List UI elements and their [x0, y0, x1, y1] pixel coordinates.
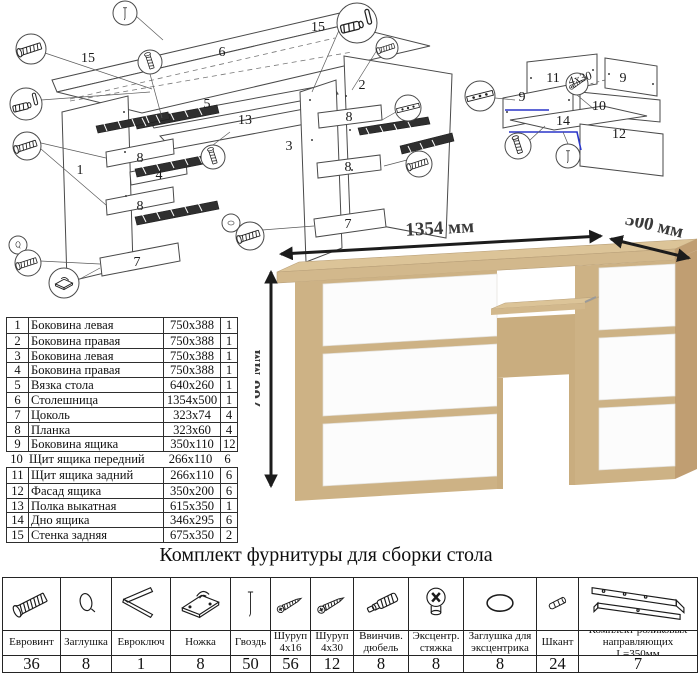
hardware-icon-cell [3, 578, 60, 630]
part-qty: 2 [220, 527, 237, 542]
part-name: Боковина правая [28, 333, 163, 348]
hardware-icon-cell [408, 578, 463, 630]
nail-icon [231, 582, 270, 626]
hardware-name: Шкант [536, 630, 578, 655]
part-name: Щит ящика передний [27, 452, 162, 467]
part-number-label: 8 [345, 160, 352, 175]
callout-circle [13, 132, 41, 160]
part-number-label: 13 [238, 113, 252, 128]
parts-row: 7Цоколь323x744 [7, 407, 237, 422]
part-name: Дно ящика [28, 512, 163, 527]
hardware-qty: 50 [230, 655, 270, 672]
parts-row: 14Дно ящика346x2956 [7, 512, 237, 527]
callout-circle [15, 250, 41, 276]
hardware-kit-table: Евровинт36 Заглушка8 Евроключ1 Ножка8 Гв… [2, 577, 698, 673]
parts-row: 9Боковина ящика350x11012 [7, 436, 237, 451]
hardware-icon-cell [170, 578, 230, 630]
parts-row: 2Боковина правая750x3881 [7, 333, 237, 348]
part-number-label: 15 [311, 20, 325, 35]
hardware-name: Ножка [170, 630, 230, 655]
part-name: Боковина правая [28, 362, 163, 377]
dimension-width-label: 1354 мм [405, 218, 475, 241]
hardware-qty: 7 [578, 655, 697, 672]
hardware-name: Гвоздь [230, 630, 270, 655]
hardware-name: Ввинчив. дюбель [353, 630, 408, 655]
part-number-label: 15 [81, 51, 95, 66]
part-size: 266x110 [162, 452, 219, 467]
desk-right-side [675, 250, 697, 479]
hardware-qty: 8 [353, 655, 408, 672]
part-number-label: 11 [546, 71, 559, 86]
callout-circle [406, 151, 432, 177]
part-qty: 1 [220, 377, 237, 392]
part-qty: 1 [220, 318, 237, 333]
callout-circle [49, 268, 79, 298]
callout-circle [10, 88, 42, 120]
part-size: 346x295 [163, 512, 220, 527]
part-number-label: 5 [204, 97, 211, 112]
hardware-qty: 1 [111, 655, 170, 672]
part-num: 4 [7, 362, 28, 377]
part-num: 10 [6, 452, 27, 467]
part-size: 750x388 [163, 333, 220, 348]
part-size: 266x110 [163, 468, 220, 483]
part-number-label: 9 [519, 90, 526, 105]
desk-inner-edge [497, 378, 503, 489]
foot-icon [171, 582, 230, 626]
part-size: 750x388 [163, 348, 220, 363]
drawer-side-panel [605, 58, 657, 96]
part-num: 12 [7, 483, 28, 498]
part-qty: 6 [220, 468, 237, 483]
callout-circle [138, 50, 162, 74]
hardware-kit-title: Комплект фурнитуры для сборки стола [0, 544, 652, 567]
part-size: 350x200 [163, 483, 220, 498]
part-qty: 6 [220, 512, 237, 527]
part-num: 11 [7, 468, 28, 483]
cap-icon [61, 582, 111, 626]
part-size: 750x388 [163, 318, 220, 333]
callout-circle [201, 145, 225, 169]
parts-row: 8Планка323x604 [7, 422, 237, 437]
screw-icon [311, 582, 353, 626]
hardware-qty: 8 [170, 655, 230, 672]
part-qty: 6 [220, 483, 237, 498]
part-number-label: 2 [359, 78, 366, 93]
callout-circle [505, 133, 531, 159]
desk-drawer-front [599, 334, 675, 400]
callout-circle [395, 95, 421, 121]
hardware-qty: 36 [3, 655, 60, 672]
dowel-threaded-icon [354, 582, 408, 626]
parts-row: 6Столешница1354x5001 [7, 392, 237, 407]
part-num: 1 [7, 318, 28, 333]
part-qty: 4 [220, 407, 237, 422]
part-qty: 1 [220, 333, 237, 348]
part-size: 615x350 [163, 498, 220, 513]
part-name: Щит ящика задний [28, 468, 163, 483]
hardware-icon-cell [578, 578, 697, 630]
parts-row: 12Фасад ящика350x2006 [7, 483, 237, 498]
part-number-label: 9 [620, 71, 627, 86]
parts-row: 3Боковина левая750x3881 [7, 348, 237, 363]
exploded-diagram-drawer: 1199101412 4х30 [455, 40, 700, 235]
euro-screw-icon [3, 582, 60, 626]
part-name: Цоколь [28, 407, 163, 422]
part-number-label: 8 [137, 199, 144, 214]
part-name: Боковина левая [28, 318, 163, 333]
part-num: 8 [7, 422, 28, 437]
oval-cap-icon [464, 582, 536, 626]
parts-list-table: 1Боковина левая750x38812Боковина правая7… [6, 317, 238, 543]
part-number-label: 10 [592, 99, 606, 114]
part-num: 9 [7, 436, 28, 451]
parts-row: 13Полка выкатная615x3501 [7, 498, 237, 513]
part-size: 323x60 [163, 422, 220, 437]
parts-row: 5Вязка стола640x2601 [7, 377, 237, 392]
dimension-depth-label: 500 мм [623, 218, 685, 243]
part-number-label: 7 [134, 255, 141, 270]
hardware-qty: 24 [536, 655, 578, 672]
part-name: Стенка задняя [28, 527, 163, 542]
desk-modesty-panel [497, 314, 575, 378]
part-number-label: 8 [346, 110, 353, 125]
callout-circle [376, 37, 398, 59]
part-qty: 1 [220, 362, 237, 377]
hardware-name: Заглушка для эксцентрика [463, 630, 536, 655]
part-num: 15 [7, 527, 28, 542]
hardware-qty: 8 [408, 655, 463, 672]
hardware-name: Евроключ [111, 630, 170, 655]
part-number-label: 14 [556, 114, 570, 129]
part-size: 1354x500 [163, 392, 220, 407]
parts-row: 1Боковина левая750x3881 [7, 318, 237, 333]
part-number-label: 12 [612, 127, 626, 142]
desk-drawer-front [599, 404, 675, 470]
part-num: 5 [7, 377, 28, 392]
part-size: 350x110 [163, 436, 220, 451]
part-name: Планка [28, 422, 163, 437]
dimension-height-label: 766 мм [255, 349, 265, 408]
part-name: Фасад ящика [28, 483, 163, 498]
hardware-name: Заглушка [60, 630, 111, 655]
part-name: Столешница [28, 392, 163, 407]
part-number-label: 1 [77, 163, 84, 178]
part-number-label: 3 [286, 139, 293, 154]
hardware-qty: 12 [310, 655, 353, 672]
hardware-icon-cell [270, 578, 310, 630]
part-qty: 4 [220, 422, 237, 437]
part-number-label: 8 [137, 151, 144, 166]
part-name: Боковина левая [28, 348, 163, 363]
parts-row: 15Стенка задняя675x3502 [7, 527, 237, 542]
hardware-qty: 56 [270, 655, 310, 672]
part-num: 6 [7, 392, 28, 407]
part-size: 323x74 [163, 407, 220, 422]
part-size: 750x388 [163, 362, 220, 377]
part-name: Боковина ящика [28, 436, 163, 451]
hardware-name: Евровинт [3, 630, 60, 655]
hardware-icon-cell [111, 578, 170, 630]
hardware-icon-cell [60, 578, 111, 630]
hardware-qty: 8 [463, 655, 536, 672]
part-qty: 1 [220, 348, 237, 363]
part-qty: 1 [220, 498, 237, 513]
hardware-icon-cell [536, 578, 578, 630]
hardware-icon-cell [463, 578, 536, 630]
hardware-qty: 8 [60, 655, 111, 672]
part-size: 675x350 [163, 527, 220, 542]
hardware-icon-cell [310, 578, 353, 630]
part-num: 13 [7, 498, 28, 513]
wood-dowel-icon [537, 582, 578, 626]
hex-key-icon [112, 582, 170, 626]
desk-3d-render: 1354 мм 500 мм 766 мм [255, 218, 700, 552]
part-number-label: 4 [156, 168, 163, 183]
part-size: 640x260 [163, 377, 220, 392]
parts-row: 4Боковина правая750x3881 [7, 362, 237, 377]
part-name: Вязка стола [28, 377, 163, 392]
hardware-name: Эксцентр. стяжка [408, 630, 463, 655]
callout-circle [556, 144, 580, 168]
callout-circle [16, 34, 46, 64]
drawer-slide-icon [579, 582, 697, 626]
callout-circle [465, 81, 495, 111]
part-num: 2 [7, 333, 28, 348]
hardware-icon-cell [230, 578, 270, 630]
parts-row: 10Щит ящика передний266x1106 [6, 452, 238, 467]
assembly-instruction-sheet: 156155132318488877 [0, 0, 700, 677]
hardware-name: Шуруп 4х30 [310, 630, 353, 655]
part-num: 14 [7, 512, 28, 527]
desk-drawer-front [323, 414, 497, 486]
part-qty: 6 [219, 452, 236, 467]
desk-drawer-front [323, 344, 497, 416]
hardware-name: Комплект роликовых направляющих L=350мм [578, 630, 697, 655]
callout-circle [113, 1, 137, 25]
desk-drawer-front [599, 264, 675, 330]
part-num: 3 [7, 348, 28, 363]
hardware-icon-cell [353, 578, 408, 630]
callout-circle [337, 3, 377, 43]
desk-inner-edge [569, 374, 575, 485]
parts-row: 11Щит ящика задний266x1106 [7, 468, 237, 483]
screw-icon [271, 582, 310, 626]
part-name: Полка выкатная [28, 498, 163, 513]
part-number-label: 6 [219, 45, 226, 60]
part-qty: 1 [220, 392, 237, 407]
cam-lock-icon [409, 582, 463, 626]
hardware-name: Шуруп 4х16 [270, 630, 310, 655]
part-num: 7 [7, 407, 28, 422]
desk-drawer-front [323, 274, 497, 346]
part-qty: 12 [220, 436, 237, 451]
